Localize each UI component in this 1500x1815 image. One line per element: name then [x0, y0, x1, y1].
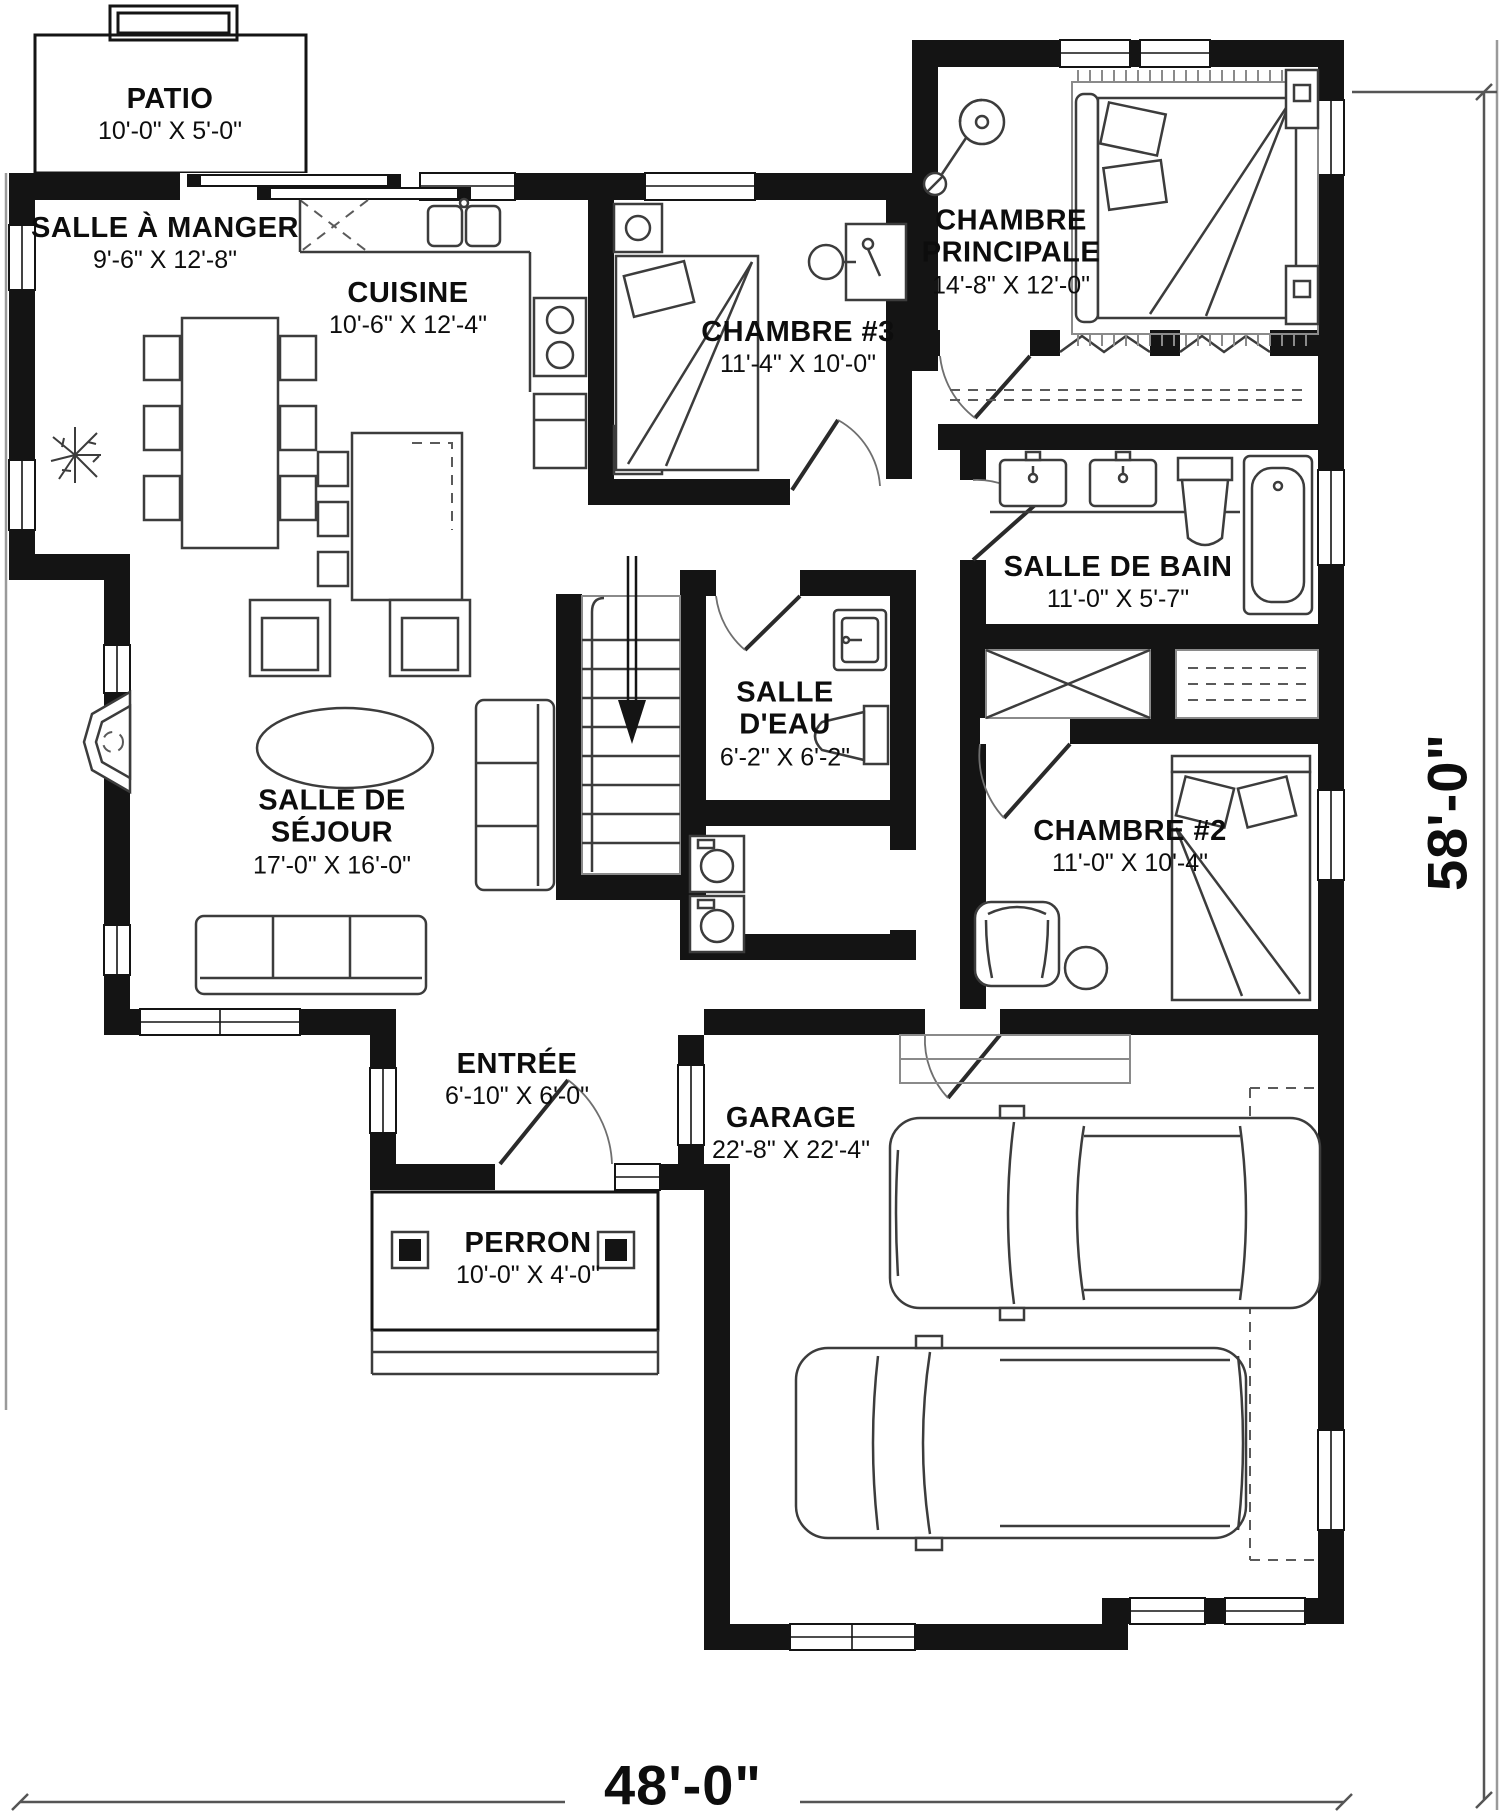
door-garage-house	[925, 1035, 1000, 1098]
window-master-1	[1060, 40, 1130, 67]
salle-d-eau-fixtures	[690, 610, 888, 952]
room-label-patio: PATIO 10'-0" X 5'-0"	[98, 83, 242, 145]
window-living-left-1	[104, 645, 130, 693]
door-master	[940, 356, 1030, 418]
room-label-chambre-principale: CHAMBRE PRINCIPALE 14'-8" X 12'-0"	[896, 205, 1126, 300]
toilet-icon	[1178, 458, 1232, 545]
room-dims: 10'-6" X 12'-4"	[329, 311, 487, 339]
armchair-icon	[975, 902, 1059, 986]
stove-icon	[534, 298, 586, 376]
suv-icon	[796, 1336, 1246, 1550]
room-name: PATIO	[98, 83, 242, 115]
garage-contents	[796, 1035, 1320, 1560]
room-dims: 9'-6" X 12'-8"	[31, 246, 299, 274]
walk-in-closet	[950, 390, 1306, 400]
room-dims: 14'-8" X 12'-0"	[896, 271, 1126, 299]
window-bath-right	[1318, 470, 1344, 565]
room-label-cuisine: CUISINE 10'-6" X 12'-4"	[329, 277, 487, 339]
sofa-right-icon	[476, 700, 554, 890]
car-icon	[890, 1106, 1320, 1320]
sink-icon	[428, 199, 500, 246]
room-name: SALLE DE SÉJOUR	[217, 785, 447, 850]
stairs	[582, 556, 680, 874]
window-entree-left	[370, 1068, 396, 1133]
room-dims: 17'-0" X 16'-0"	[217, 851, 447, 879]
window-front-sidelight	[615, 1164, 660, 1190]
fridge-icon	[534, 394, 586, 468]
dining-furniture	[51, 318, 316, 548]
room-dims: 10'-0" X 5'-0"	[98, 117, 242, 145]
bathroom-sink-1	[1000, 452, 1066, 506]
coffee-table-icon	[257, 708, 433, 788]
room-dims: 6'-2" X 6'-2"	[710, 743, 860, 771]
room-label-salle-de-bain: SALLE DE BAIN 11'-0" X 5'-7"	[1004, 551, 1233, 613]
room-name: CHAMBRE PRINCIPALE	[896, 205, 1126, 270]
powder-sink-icon	[834, 610, 886, 670]
sofa-bottom-icon	[196, 916, 426, 994]
room-label-salle-a-manger: SALLE À MANGER 9'-6" X 12'-8"	[31, 212, 299, 274]
room-name: ENTRÉE	[445, 1048, 589, 1080]
room-name: SALLE D'EAU	[710, 677, 860, 742]
room-label-salle-d-eau: SALLE D'EAU 6'-2" X 6'-2"	[710, 677, 860, 772]
window-garage-front-1	[1130, 1598, 1205, 1624]
desk-icon	[809, 224, 906, 300]
overall-height-dimension: 58'-0"	[1415, 733, 1480, 891]
kitchen-fixtures	[300, 199, 586, 600]
bathtub-icon	[1244, 456, 1312, 614]
overall-width-dimension: 48'-0"	[604, 1753, 762, 1815]
bathroom-sink-2	[1090, 452, 1156, 506]
stairs-down-arrow	[618, 556, 646, 744]
room-dims: 10'-0" X 4'-0"	[456, 1261, 600, 1289]
room-dims: 6'-10" X 6'-0"	[445, 1082, 589, 1110]
washer-icon	[690, 836, 744, 892]
floor-plan-page: PATIO 10'-0" X 5'-0" SALLE À MANGER 9'-6…	[0, 0, 1500, 1815]
door-salle-d-eau	[716, 596, 800, 650]
room-dims: 11'-0" X 5'-7"	[1004, 585, 1233, 613]
door-chambre2	[979, 744, 1070, 818]
room-label-garage: GARAGE 22'-8" X 22'-4"	[712, 1102, 870, 1164]
window-garage-front-2	[1225, 1598, 1305, 1624]
window-chambre3	[645, 173, 755, 200]
ottoman-icon	[1065, 947, 1107, 989]
room-name: PERRON	[456, 1227, 600, 1259]
bed-chambre2-icon	[1172, 756, 1310, 1000]
room-label-chambre-2: CHAMBRE #2 11'-0" X 10'-4"	[1033, 815, 1227, 877]
window-master-right	[1318, 100, 1344, 175]
window-master-2	[1140, 40, 1210, 67]
window-chambre2-right	[1318, 790, 1344, 880]
window-entree-garage	[678, 1065, 704, 1145]
room-label-salle-de-sejour: SALLE DE SÉJOUR 17'-0" X 16'-0"	[217, 785, 447, 880]
room-label-entree: ENTRÉE 6'-10" X 6'-0"	[445, 1048, 589, 1110]
room-name: SALLE À MANGER	[31, 212, 299, 244]
window-garage-bottom	[790, 1624, 915, 1650]
perron-post-2	[598, 1232, 634, 1268]
room-name: CUISINE	[329, 277, 487, 309]
plant-icon	[51, 427, 101, 483]
corner-pantry	[300, 200, 368, 252]
room-dims: 22'-8" X 22'-4"	[712, 1136, 870, 1164]
room-name: CHAMBRE #2	[1033, 815, 1227, 847]
dryer-icon	[690, 896, 744, 952]
island	[318, 433, 462, 600]
room-label-chambre-3: CHAMBRE #3 11'-4" X 10'-0"	[701, 316, 895, 378]
window-dining-left-2	[9, 460, 35, 530]
perron-post-1	[392, 1232, 428, 1268]
room-label-perron: PERRON 10'-0" X 4'-0"	[456, 1227, 600, 1289]
garage-landing	[900, 1035, 1130, 1083]
room-dims: 11'-0" X 10'-4"	[1033, 849, 1227, 877]
window-living-bottom	[140, 1009, 300, 1035]
room-name: GARAGE	[712, 1102, 870, 1134]
fireplace-icon	[84, 692, 130, 792]
window-living-left-2	[104, 925, 130, 975]
room-name: CHAMBRE #3	[701, 316, 895, 348]
room-dims: 11'-4" X 10'-0"	[701, 350, 895, 378]
window-garage-right	[1318, 1430, 1344, 1530]
room-name: SALLE DE BAIN	[1004, 551, 1233, 583]
